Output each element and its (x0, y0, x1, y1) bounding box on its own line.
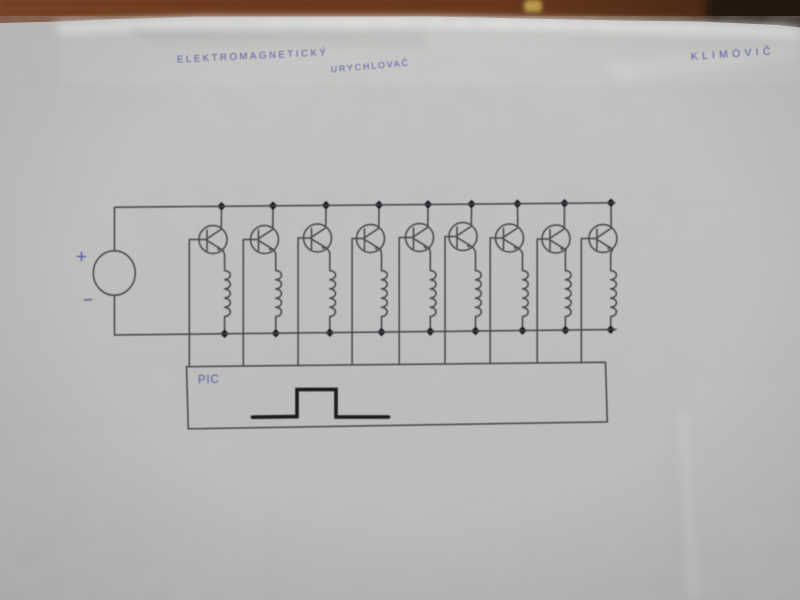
svg-text:PIC: PIC (198, 373, 220, 387)
